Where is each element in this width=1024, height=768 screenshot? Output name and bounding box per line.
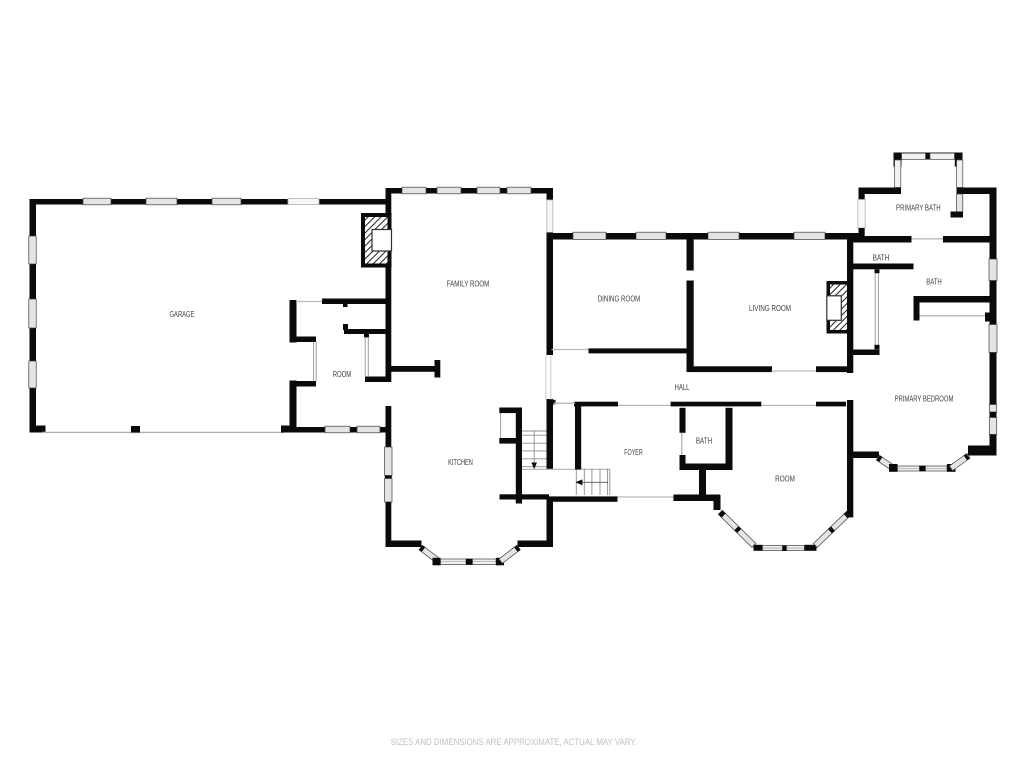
- svg-text:PRIMARY BATH: PRIMARY BATH: [896, 203, 941, 212]
- svg-text:DINING ROOM: DINING ROOM: [598, 295, 641, 304]
- svg-text:BATH: BATH: [696, 437, 712, 446]
- svg-text:BATH: BATH: [873, 254, 890, 263]
- svg-text:HALL: HALL: [675, 383, 691, 392]
- svg-text:GARAGE: GARAGE: [170, 310, 195, 319]
- svg-text:BATH: BATH: [926, 278, 942, 287]
- svg-text:FOYER: FOYER: [624, 448, 643, 457]
- svg-text:LIVING ROOM: LIVING ROOM: [749, 304, 791, 313]
- svg-text:ROOM: ROOM: [333, 370, 352, 379]
- svg-text:PRIMARY BEDROOM: PRIMARY BEDROOM: [895, 394, 954, 403]
- svg-text:KITCHEN: KITCHEN: [448, 458, 473, 467]
- svg-text:ROOM: ROOM: [775, 474, 795, 483]
- svg-text:SIZES AND DIMENSIONS ARE APPRO: SIZES AND DIMENSIONS ARE APPROXIMATE, AC…: [391, 737, 637, 748]
- svg-text:FAMILY ROOM: FAMILY ROOM: [447, 280, 490, 289]
